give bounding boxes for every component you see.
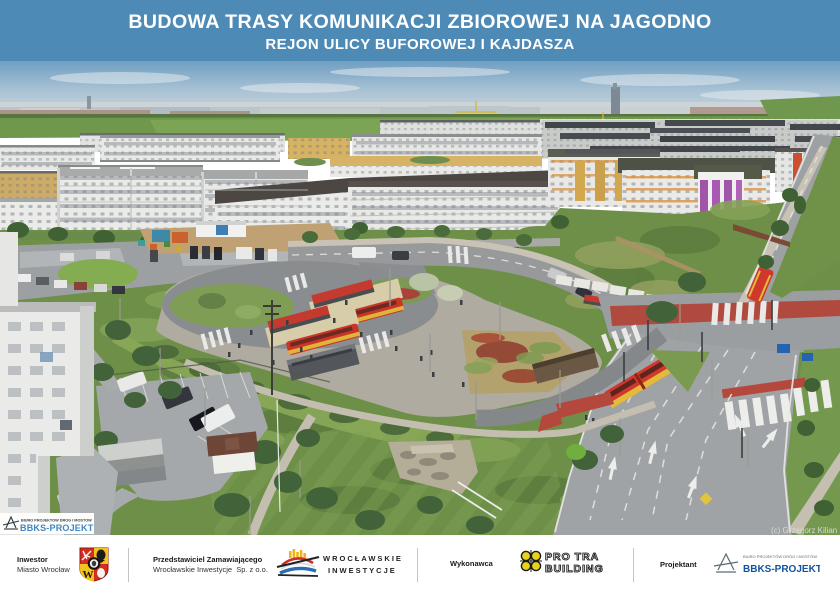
svg-text:BIURO PROJEKTOW DROG I MOSTOW: BIURO PROJEKTOW DROG I MOSTOW bbox=[21, 519, 92, 523]
svg-text:BUILDING: BUILDING bbox=[545, 563, 604, 575]
svg-text:BIURO PROJEKTÓW DRÓG I MOSTÓW: BIURO PROJEKTÓW DRÓG I MOSTÓW bbox=[743, 554, 817, 559]
svg-text:BBKS-PROJEKT: BBKS-PROJEKT bbox=[20, 523, 94, 533]
svg-text:INWESTYCJE: INWESTYCJE bbox=[328, 566, 397, 575]
svg-text:(c) Grzegorz Kilian: (c) Grzegorz Kilian bbox=[771, 526, 837, 535]
svg-text:WROCŁAWSKIE: WROCŁAWSKIE bbox=[323, 554, 403, 563]
svg-text:W: W bbox=[83, 569, 94, 581]
svg-text:PRO TRA: PRO TRA bbox=[545, 551, 599, 563]
svg-text:BBKS-PROJEKT: BBKS-PROJEKT bbox=[743, 564, 820, 575]
